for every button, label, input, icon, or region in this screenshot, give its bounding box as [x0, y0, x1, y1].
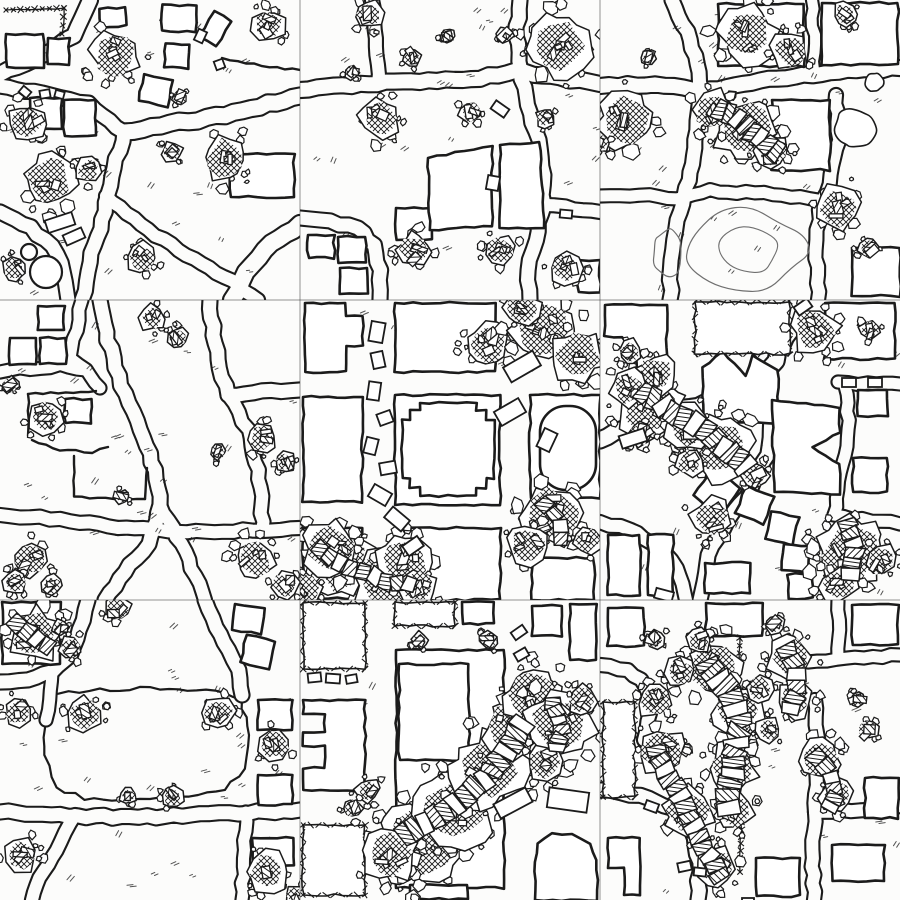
cart	[842, 378, 856, 387]
building	[231, 604, 265, 635]
building	[531, 557, 595, 601]
building	[704, 562, 750, 594]
building	[307, 235, 335, 259]
building	[532, 605, 562, 637]
building	[462, 601, 494, 624]
cart	[308, 672, 322, 682]
cart	[367, 381, 381, 400]
building	[302, 396, 363, 503]
building	[64, 398, 92, 424]
cart	[868, 378, 882, 387]
building	[239, 634, 276, 670]
map-tile-r2-c1	[299, 599, 609, 900]
building	[832, 844, 885, 882]
map-tile-r0-c0	[0, 0, 300, 300]
city-map	[0, 0, 900, 900]
hedge	[692, 298, 793, 357]
cart	[379, 461, 397, 476]
cart	[345, 674, 357, 684]
wall	[28, 394, 29, 436]
map-tile-r1-c1	[276, 279, 620, 623]
building	[401, 402, 495, 497]
building	[821, 2, 899, 66]
building	[63, 100, 96, 137]
building	[258, 774, 294, 805]
building	[257, 699, 292, 730]
map-tile-r2-c0	[0, 592, 306, 900]
building	[47, 38, 70, 65]
building	[338, 236, 367, 263]
cart	[363, 437, 379, 455]
map-tile-r2-c2	[599, 600, 900, 900]
building	[607, 607, 645, 647]
tree	[865, 73, 884, 91]
hedge	[392, 599, 459, 630]
map-tile-r0-c2	[584, 0, 900, 300]
building	[340, 268, 368, 295]
building	[756, 857, 800, 897]
building	[163, 43, 189, 69]
building	[569, 604, 597, 661]
building	[137, 74, 173, 107]
cart	[560, 209, 573, 218]
map-tile-r1-c2	[600, 296, 900, 610]
well	[30, 256, 62, 288]
building	[857, 390, 888, 417]
building	[5, 34, 44, 68]
building	[851, 604, 899, 645]
building	[427, 146, 493, 230]
building	[161, 4, 197, 33]
cart	[370, 351, 385, 369]
hedge	[599, 699, 638, 800]
cart	[54, 90, 65, 99]
cart	[677, 861, 692, 873]
cart	[326, 674, 341, 684]
building	[499, 142, 544, 229]
building	[864, 777, 899, 819]
building	[765, 511, 800, 546]
cart	[486, 175, 500, 191]
cart	[39, 89, 50, 99]
map-canvas	[0, 0, 900, 900]
hedge	[299, 599, 368, 672]
map-tile-r0-c1	[300, 0, 607, 300]
building	[38, 306, 65, 330]
well	[21, 244, 37, 260]
building	[39, 337, 67, 364]
cart	[368, 321, 385, 343]
building	[534, 833, 598, 900]
building	[852, 457, 888, 493]
map-tile-r1-c0	[0, 300, 301, 604]
hedge	[300, 822, 369, 899]
building	[607, 535, 641, 597]
cart	[547, 787, 589, 812]
building	[647, 534, 674, 596]
building	[9, 338, 37, 365]
building	[303, 700, 366, 791]
cart	[694, 867, 707, 876]
cart	[214, 59, 226, 71]
building	[398, 663, 470, 761]
